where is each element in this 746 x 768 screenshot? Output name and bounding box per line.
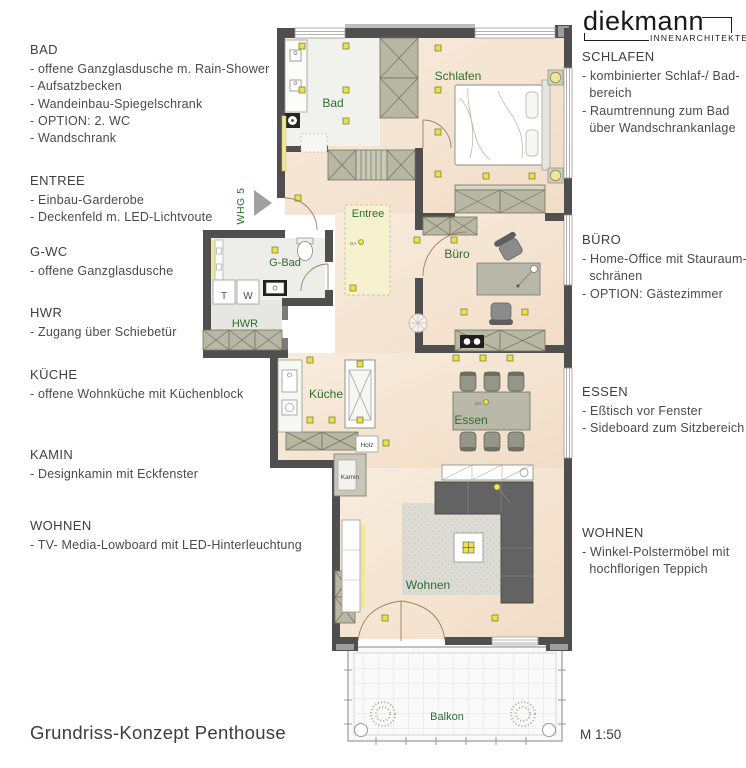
annotation-line: - Home-Office mit Stauraum- [582, 251, 746, 268]
annotation-line: - Eßtisch vor Fenster [582, 403, 746, 420]
annotation-title: SCHLAFEN [582, 49, 746, 64]
logo-underline-icon [584, 33, 649, 41]
tv-lowboard [342, 520, 360, 612]
lamp-icon [550, 170, 560, 180]
annotation-line: - OPTION: Gästezimmer [582, 286, 746, 303]
annotation-line: bereich [582, 85, 746, 102]
room-label-buero: Büro [444, 247, 470, 261]
entry-arrow-icon [254, 190, 272, 216]
printer [460, 335, 484, 348]
da-label: DA [475, 401, 481, 406]
annotation-line: über Wandschrankanlage [582, 120, 746, 137]
led-strip [361, 524, 365, 608]
pillow [526, 130, 538, 156]
led-strip [282, 116, 286, 171]
balcony-post [543, 724, 556, 737]
annotation-essen: ESSEN - Eßtisch vor Fenster - Sideboard … [582, 384, 746, 438]
room-label-schlafen: Schlafen [435, 69, 482, 83]
annotation-schlafen: SCHLAFEN - kombinierter Schlaf-/ Bad- be… [582, 49, 746, 137]
annotation-line: schränen [582, 268, 746, 285]
annotation-buero: BÜRO - Home-Office mit Stauraum- schräne… [582, 232, 746, 303]
shower-floor [301, 134, 327, 152]
room-label-balkon: Balkon [430, 711, 464, 723]
annotation-title: WOHNEN [582, 525, 746, 540]
annotation-line: hochflorigen Teppich [582, 561, 746, 578]
annotation-title: ESSEN [582, 384, 746, 399]
room-label-kueche: Küche [309, 387, 343, 401]
balcony-post [355, 724, 368, 737]
annotation-title: BÜRO [582, 232, 746, 247]
led-strip [211, 240, 215, 280]
room-label-bad: Bad [322, 96, 343, 110]
annotation-line: - Sideboard zum Sitzbereich [582, 420, 746, 437]
ceiling-fan-icon [409, 314, 427, 332]
room-label-entree: Entree [352, 208, 384, 220]
logo: diekmann INNENARCHITEKTEN [583, 6, 743, 54]
window [492, 637, 538, 645]
room-label-wohnen: Wohnen [406, 578, 450, 592]
essen-furniture: DA [453, 372, 530, 451]
room-label-hwr: HWR [232, 318, 258, 330]
floor-plan: Balkon [198, 8, 578, 748]
dryer-label: T [221, 291, 227, 302]
office-chair [489, 303, 513, 325]
kamin-label: Kamin [341, 474, 360, 481]
annotation-wohnen-right: WOHNEN - Winkel-Polstermöbel mit hochflo… [582, 525, 746, 579]
scale-label: M 1:50 [580, 727, 621, 742]
lamp-icon [550, 72, 560, 82]
drawing-title: Grundriss-Konzept Penthouse [30, 722, 286, 744]
window [564, 68, 572, 458]
room-label-essen: Essen [454, 413, 487, 427]
room-label-gbad: G-Bad [269, 257, 301, 269]
logo-bracket-icon [702, 17, 732, 33]
pillow [526, 92, 538, 118]
balcony: Balkon [344, 647, 566, 745]
logo-subtitle: INNENARCHITEKTEN [650, 33, 746, 43]
annotation-line: - kombinierter Schlaf-/ Bad- [582, 68, 746, 85]
washer-label: W [243, 291, 253, 302]
holz-label: Holz [360, 442, 373, 449]
unit-entry-marker: WHG 5 [235, 188, 272, 225]
cooktop [282, 400, 297, 415]
annotation-line: - Raumtrennung zum Bad [582, 103, 746, 120]
unit-label: WHG 5 [235, 188, 247, 225]
da-label: DA [350, 241, 356, 246]
annotation-line: - Winkel-Polstermöbel mit [582, 544, 746, 561]
page: diekmann INNENARCHITEKTEN BAD - offene G… [0, 0, 746, 768]
